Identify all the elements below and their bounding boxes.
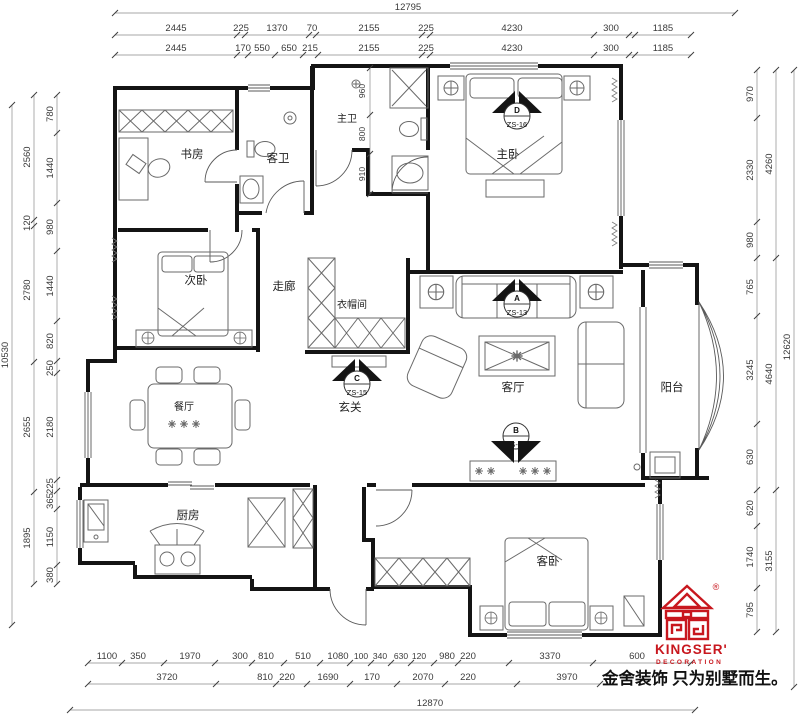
- dim-label: 1185: [653, 23, 673, 34]
- room-label-dining: 餐厅: [174, 400, 194, 413]
- dim-label: 1370: [266, 23, 287, 34]
- dim-label: 600: [629, 651, 645, 662]
- dim-label: 550: [254, 43, 270, 54]
- dim-label: 225: [418, 43, 434, 54]
- tv-cabinet: [470, 461, 556, 481]
- dim-label: 765: [745, 279, 756, 295]
- dim-label: 1970: [179, 651, 200, 662]
- walls: [78, 64, 709, 637]
- dim-label: 2330: [745, 159, 756, 180]
- guest-bath-drain: [284, 112, 296, 124]
- svg-text:C: C: [354, 374, 360, 383]
- dim-label: 170: [235, 43, 251, 54]
- dim-label: 1100: [97, 651, 117, 662]
- dim-label: 2780: [22, 279, 33, 300]
- dim-label: 1440: [45, 275, 56, 296]
- second-bedroom-cabinet: [136, 330, 252, 347]
- dim-label: 800: [357, 127, 367, 141]
- brand-subtitle: DECORATION: [656, 659, 723, 666]
- dim-label: 820: [45, 333, 56, 349]
- dim-label: 170: [364, 672, 380, 683]
- dim-label: 300: [603, 23, 619, 34]
- dining-set: [130, 367, 250, 465]
- brand-name: KINGSER': [655, 642, 728, 657]
- marker-zs16: D ZS-16: [492, 91, 542, 129]
- room-label-guest-bath: 客卫: [267, 151, 290, 165]
- svg-text:D: D: [514, 106, 520, 115]
- elevation-markers: D ZS-16 A ZS-13 C ZS-15 B ZS-14: [332, 91, 542, 463]
- interior-dimensions: 960 800 910: [357, 65, 373, 197]
- dim-label: 980: [45, 219, 56, 235]
- dim-label: 510: [295, 651, 311, 662]
- dim-label: 225: [418, 23, 434, 34]
- registered-mark: ®: [713, 582, 720, 592]
- dim-label: 350: [130, 651, 146, 662]
- dim-label: 2445: [165, 43, 186, 54]
- dim-label: 2560: [22, 146, 33, 167]
- room-label-guest-bedroom: 客卧: [537, 554, 560, 568]
- dim-label: 810: [258, 651, 274, 662]
- dim-label: 250: [45, 360, 56, 376]
- second-bedroom-bed: [158, 252, 228, 336]
- room-label-master-bedroom: 主卧: [497, 148, 520, 161]
- room-label-corridor: 走廊: [273, 279, 296, 293]
- dim-label: 120: [22, 215, 33, 231]
- svg-text:B: B: [513, 426, 519, 435]
- dim-label: 1150: [45, 527, 56, 547]
- room-label-foyer: 玄关: [339, 400, 362, 414]
- dim-label: 300: [603, 43, 619, 54]
- room-label-master-bath: 主卫: [337, 113, 357, 125]
- dim-label: 810: [257, 672, 273, 683]
- dim-label: 3970: [556, 672, 577, 683]
- dim-label: 1080: [327, 651, 348, 662]
- kitchen-stove: [150, 524, 204, 575]
- dim-label: 300: [232, 651, 248, 662]
- dim-label: 340: [373, 651, 387, 661]
- dim-label: 380: [45, 567, 56, 583]
- dim-label: 12795: [395, 2, 421, 13]
- guest-bed: [505, 538, 588, 630]
- dim-label: 620: [745, 500, 756, 516]
- dim-label: 225: [45, 478, 56, 494]
- dim-label: 780: [45, 106, 56, 122]
- dim-label: 12870: [417, 698, 443, 709]
- dim-label: 220: [279, 672, 295, 683]
- marker-zs15: C ZS-15: [332, 359, 382, 397]
- living-coffee-table: [479, 336, 555, 376]
- room-label-kitchen: 厨房: [177, 509, 200, 522]
- guest-bath-sink: [240, 176, 263, 203]
- dim-label: 2655: [22, 416, 33, 437]
- guest-wardrobe: [375, 558, 470, 586]
- dim-label: 2155: [358, 23, 379, 34]
- master-bath-sink: [392, 156, 428, 190]
- svg-text:A: A: [514, 294, 520, 303]
- room-label-second-bedroom: 次卧: [185, 273, 208, 287]
- floorplan-drawing: 12795 2445 225 1370 70 2155 225 4230 300…: [0, 0, 800, 714]
- dim-label: 220: [460, 672, 476, 683]
- study-desk: [119, 138, 172, 200]
- dim-label: 4230: [501, 23, 522, 34]
- dim-label: 1895: [22, 527, 33, 548]
- dim-label: 650: [281, 43, 297, 54]
- dim-label: 2155: [358, 43, 379, 54]
- floorplan-page: 12795 2445 225 1370 70 2155 225 4230 300…: [0, 0, 800, 714]
- dim-label: 3370: [539, 651, 560, 662]
- dim-label: 70: [307, 23, 318, 34]
- dim-label: 4230: [501, 43, 522, 54]
- dim-label: 1440: [45, 157, 56, 178]
- dim-label: 12620: [782, 334, 793, 360]
- dim-label: 100: [354, 651, 368, 661]
- svg-text:ZS-16: ZS-16: [507, 120, 527, 129]
- kitchen-cabinet: [293, 489, 313, 548]
- dim-label: 970: [745, 86, 756, 102]
- svg-text:ZS-13: ZS-13: [507, 308, 527, 317]
- dim-label: 2180: [45, 416, 56, 437]
- dim-label: 1740: [745, 546, 756, 567]
- dim-label: 2070: [412, 672, 433, 683]
- dim-label: 4260: [764, 153, 775, 174]
- dim-label: 3720: [156, 672, 177, 683]
- dim-label: 4640: [764, 363, 775, 384]
- balcony-plant-stand: [634, 452, 680, 478]
- marker-zs14: B ZS-14: [491, 423, 541, 463]
- dim-label: 960: [357, 84, 367, 98]
- marker-zs13: A ZS-13: [492, 279, 542, 317]
- dim-label: 215: [302, 43, 318, 54]
- kingser-emblem-icon: [663, 586, 711, 639]
- room-labels: 书房 客卫 主卫 主卧 次卧 走廊 衣帽间 客厅 阳台 餐厅 玄关 厨房 客卧: [174, 113, 684, 568]
- room-label-living: 客厅: [502, 380, 525, 394]
- master-bath-shower: [390, 68, 428, 108]
- dim-label: 1185: [653, 43, 673, 54]
- room-label-study: 书房: [181, 148, 204, 161]
- dim-label: 630: [394, 651, 408, 661]
- room-label-cloakroom: 衣帽间: [337, 298, 367, 311]
- brand-tagline: 金舍装饰 只为别墅而生。: [601, 668, 788, 688]
- dim-label: 2445: [165, 23, 186, 34]
- study-wardrobe: [119, 110, 233, 132]
- room-label-balcony: 阳台: [661, 380, 684, 394]
- guest-room-unit: [624, 596, 644, 626]
- kitchen-fridge: [248, 498, 285, 547]
- dim-label: 1690: [317, 672, 338, 683]
- dim-label: 3155: [764, 550, 775, 571]
- dim-label: 910: [357, 167, 367, 181]
- dim-label: 795: [745, 602, 756, 618]
- dim-label: 10530: [0, 342, 11, 368]
- dim-label: 220: [460, 651, 476, 662]
- dim-label: 630: [745, 449, 756, 465]
- dim-label: 225: [233, 23, 249, 34]
- dim-label: 120: [412, 651, 426, 661]
- kitchen-sink: [84, 500, 108, 542]
- master-bath-toilet: [400, 118, 428, 140]
- dim-label: 365: [45, 493, 56, 509]
- dim-label: 980: [439, 651, 455, 662]
- dim-label: 980: [745, 232, 756, 248]
- svg-text:ZS-15: ZS-15: [347, 388, 367, 397]
- dim-label: 3245: [745, 359, 756, 380]
